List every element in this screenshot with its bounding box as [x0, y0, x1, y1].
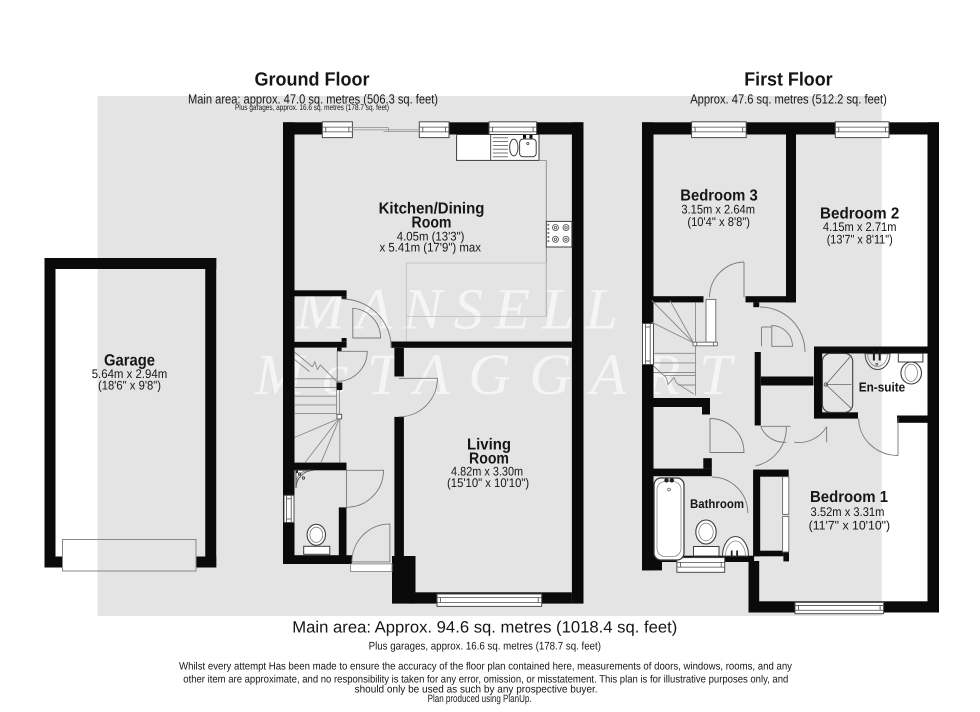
svg-text:(18'6" x 9'8"): (18'6" x 9'8") [98, 378, 161, 392]
svg-text:Main area: Approx. 94.6 sq. me: Main area: Approx. 94.6 sq. metres (1018… [292, 619, 677, 637]
svg-text:Approx. 47.6 sq. metres (512.2: Approx. 47.6 sq. metres (512.2 sq. feet) [690, 91, 887, 106]
svg-text:(10'4" x 8'8"): (10'4" x 8'8") [687, 215, 750, 229]
svg-text:First Floor: First Floor [744, 69, 833, 90]
svg-text:En-suite: En-suite [859, 379, 906, 394]
svg-text:Bedroom 1: Bedroom 1 [810, 489, 888, 506]
svg-text:Whilst every attempt Has been: Whilst every attempt Has been made to en… [179, 660, 793, 672]
svg-text:(11'7" x 10'10"): (11'7" x 10'10") [809, 519, 891, 533]
svg-text:McTAGGART: McTAGGART [254, 342, 750, 407]
svg-text:Plus garages, approx. 16.6 sq.: Plus garages, approx. 16.6 sq. metres (1… [369, 641, 601, 653]
svg-text:Plan produced using PlanUp.: Plan produced using PlanUp. [428, 693, 532, 705]
svg-text:(13'7" x 8'11"): (13'7" x 8'11") [827, 232, 893, 246]
svg-text:Plus garages, approx. 16.6 sq.: Plus garages, approx. 16.6 sq. metres (1… [235, 103, 389, 112]
svg-text:Ground Floor: Ground Floor [255, 69, 371, 90]
svg-text:Bathroom: Bathroom [690, 497, 744, 511]
svg-text:3.52m x 3.31m: 3.52m x 3.31m [811, 505, 885, 519]
svg-text:x 5.41m (17'9") max: x 5.41m (17'9") max [379, 241, 481, 255]
svg-text:(15'10" x 10'10"): (15'10" x 10'10") [447, 476, 529, 490]
